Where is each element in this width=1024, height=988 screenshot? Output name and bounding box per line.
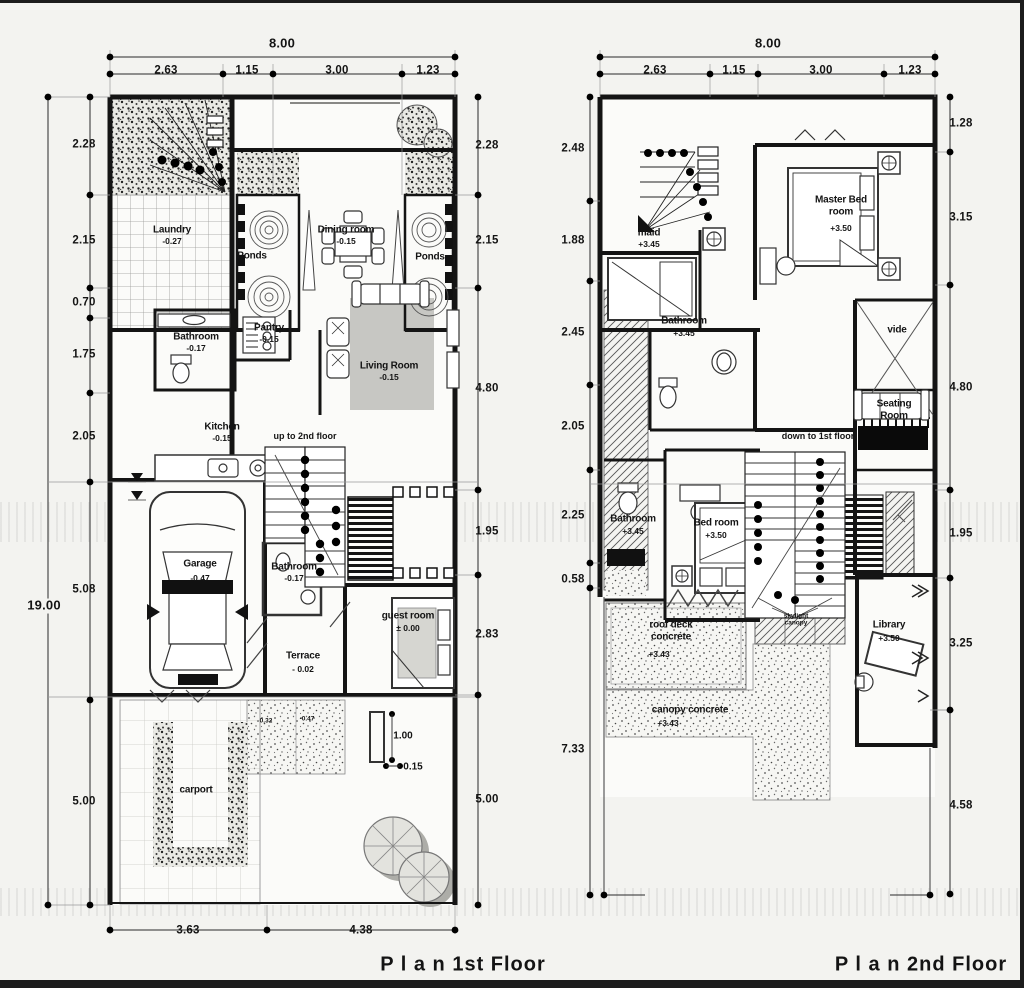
floor-plan-scan: { "document": { "type": "architectural f… xyxy=(0,0,1024,988)
floor2-stairs xyxy=(745,452,845,618)
floorplan-drawing xyxy=(0,0,1024,988)
floor1-plan xyxy=(44,50,482,934)
floor2-plan xyxy=(586,50,954,898)
drawing-sheet: 8.002.631.153.001.2319.002.282.150.701.7… xyxy=(0,0,1024,988)
